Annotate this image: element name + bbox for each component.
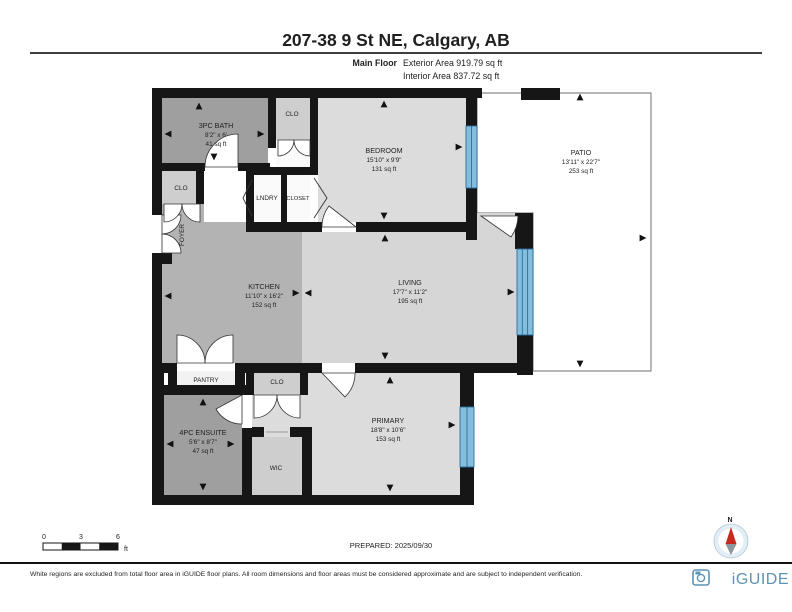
living-area: 195 sq ft bbox=[398, 298, 423, 305]
scale-unit: ft bbox=[124, 546, 128, 553]
kitchen-dims: 11'10" x 16'2" bbox=[245, 293, 283, 300]
camera-icon bbox=[693, 570, 709, 585]
hall-vestibule bbox=[204, 171, 246, 222]
interior-area: Interior Area 837.72 sq ft bbox=[403, 71, 500, 81]
footer-disclaimer: White regions are excluded from total fl… bbox=[30, 571, 582, 578]
clo-left-label: CLO bbox=[174, 185, 187, 192]
living-sliding-door bbox=[517, 249, 533, 335]
bath-dims: 8'2" x 6' bbox=[205, 132, 227, 139]
room-clo-top bbox=[276, 96, 310, 140]
lndry-label: LNDRY bbox=[256, 195, 278, 202]
scale-tick-6: 6 bbox=[116, 534, 120, 541]
bedroom-window bbox=[466, 126, 477, 188]
exterior-area: Exterior Area 919.79 sq ft bbox=[403, 58, 503, 68]
page-title: 207-38 9 St NE, Calgary, AB bbox=[282, 30, 510, 50]
patio-area: 253 sq ft bbox=[569, 168, 594, 175]
compass-north-label: N bbox=[727, 517, 732, 524]
living-dims: 17'7" x 11'2" bbox=[393, 289, 428, 296]
prepared-date: PREPARED: 2025/09/30 bbox=[350, 541, 432, 550]
patio-label: PATIO bbox=[571, 148, 592, 157]
kitchen-label: KITCHEN bbox=[248, 282, 280, 291]
primary-label: PRIMARY bbox=[372, 416, 405, 425]
brand-name: iGUIDE bbox=[732, 571, 789, 588]
closet-label: CLOSET bbox=[286, 196, 310, 202]
scale-tick-3: 3 bbox=[79, 534, 83, 541]
pantry-label: PANTRY bbox=[193, 377, 219, 384]
scale-bar: 0 3 6 ft bbox=[42, 534, 128, 553]
floorplan-page: 207-38 9 St NE, Calgary, AB Main Floor E… bbox=[0, 0, 792, 612]
primary-area: 153 sq ft bbox=[376, 436, 401, 443]
bedroom-dims: 15'10" x 9'9" bbox=[366, 157, 401, 164]
scale-tick-0: 0 bbox=[42, 534, 46, 541]
foyer-label: FOYER bbox=[179, 224, 186, 246]
floor-label: Main Floor bbox=[353, 58, 398, 68]
ensuite-area: 47 sq ft bbox=[193, 448, 214, 455]
primary-dims: 18'8" x 10'6" bbox=[370, 427, 405, 434]
living-label: LIVING bbox=[398, 278, 422, 287]
bath-label: 3PC BATH bbox=[199, 121, 234, 130]
bedroom-area: 131 sq ft bbox=[372, 166, 397, 173]
compass-icon: N bbox=[714, 517, 748, 558]
wic-label: WIC bbox=[270, 465, 283, 472]
kitchen-area: 152 sq ft bbox=[252, 302, 277, 309]
primary-window bbox=[460, 407, 474, 467]
iguide-logo: iGUIDE bbox=[693, 570, 789, 588]
bedroom-label: BEDROOM bbox=[365, 146, 402, 155]
bath-area: 41 sq ft bbox=[206, 141, 227, 148]
clo-top-label: CLO bbox=[285, 111, 298, 118]
clo-mid-label: CLO bbox=[270, 379, 283, 386]
ensuite-dims: 5'6" x 8'7" bbox=[189, 439, 217, 446]
ensuite-label: 4PC ENSUITE bbox=[179, 428, 226, 437]
floorplan-canvas: 207-38 9 St NE, Calgary, AB Main Floor E… bbox=[0, 0, 792, 612]
patio-dims: 13'11" x 22'7" bbox=[562, 159, 600, 166]
